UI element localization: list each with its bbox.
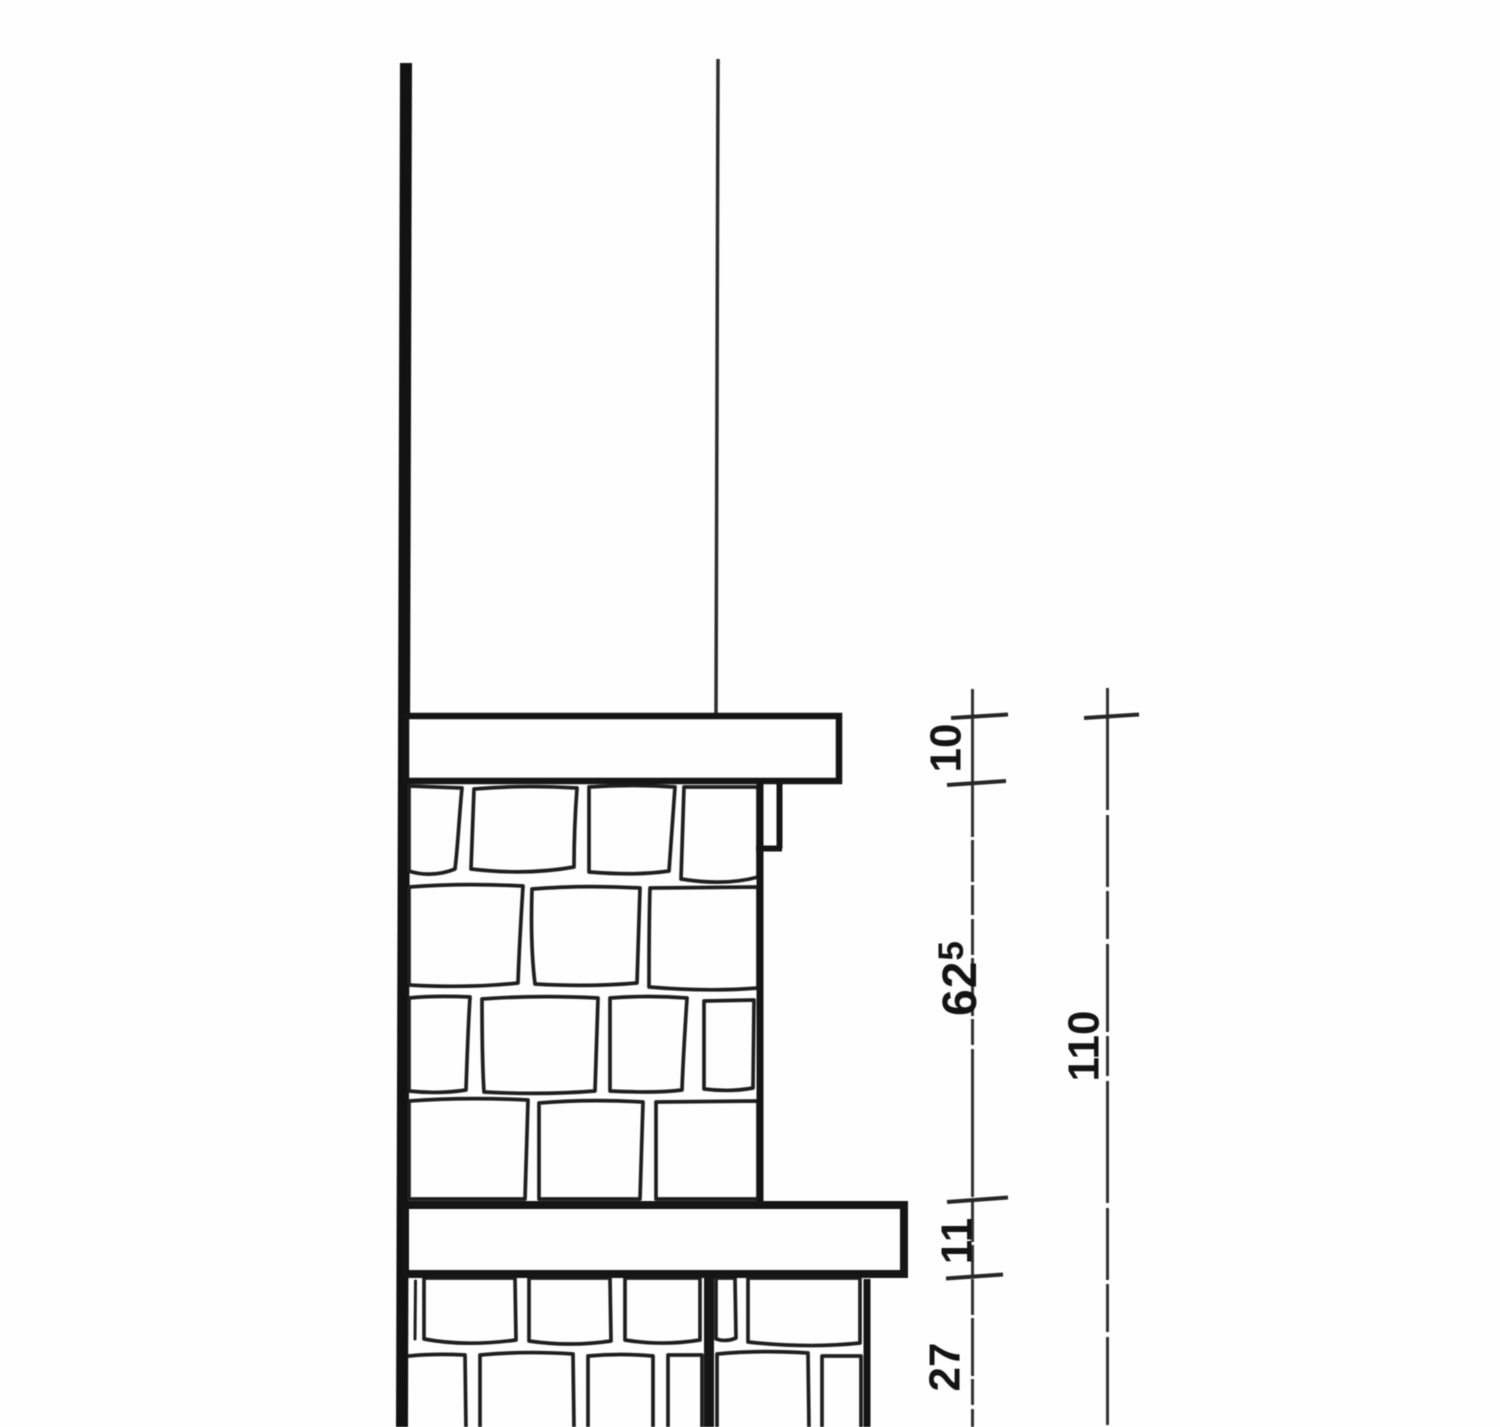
svg-text:27: 27: [921, 1343, 970, 1392]
svg-text:110: 110: [1060, 1011, 1109, 1082]
svg-text:625: 625: [932, 940, 987, 1016]
svg-text:11: 11: [933, 1218, 982, 1265]
svg-text:10: 10: [922, 724, 971, 773]
